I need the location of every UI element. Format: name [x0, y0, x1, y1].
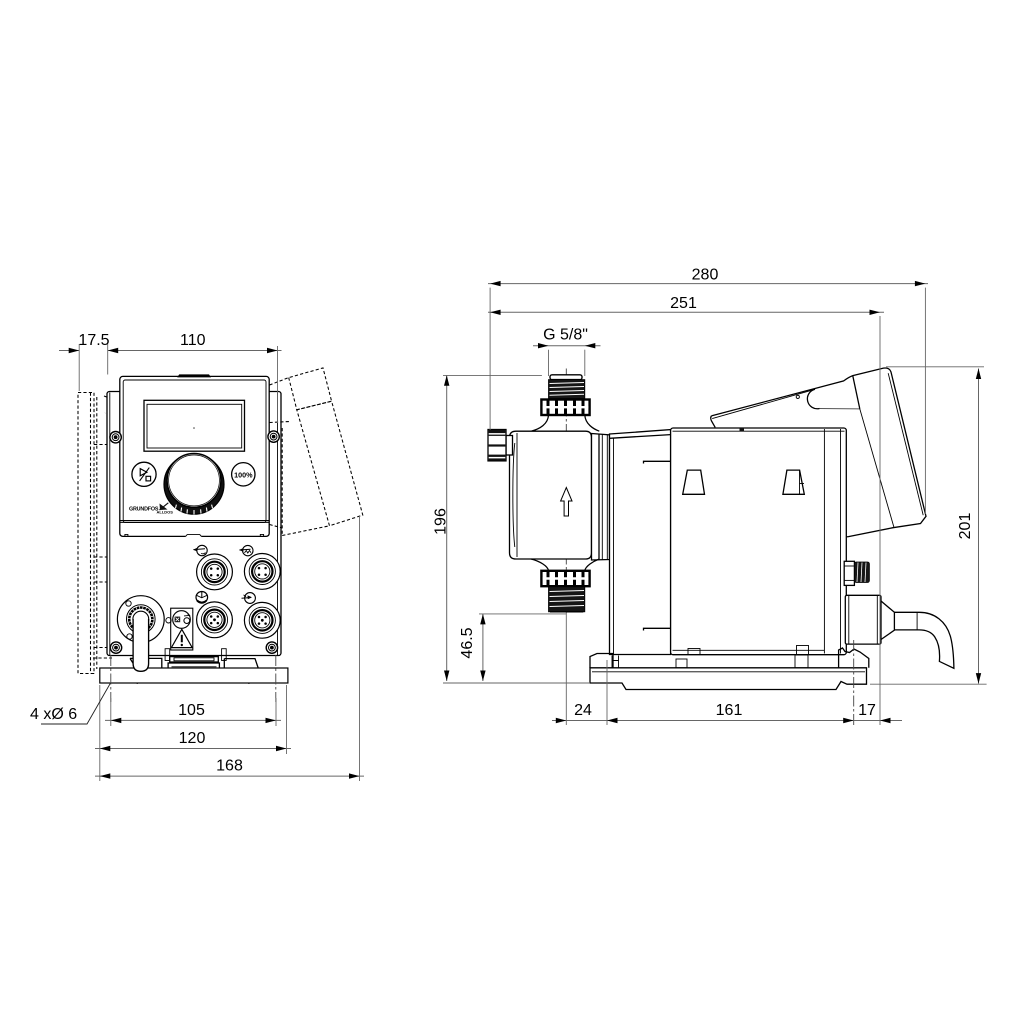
svg-text:110: 110 [180, 332, 206, 349]
svg-text:196: 196 [433, 508, 450, 535]
svg-text:251: 251 [670, 295, 697, 312]
svg-text:24: 24 [574, 702, 592, 719]
svg-text:17.5: 17.5 [78, 332, 109, 349]
svg-text:161: 161 [716, 702, 743, 719]
svg-text:280: 280 [692, 266, 719, 283]
svg-text:ALLDOS: ALLDOS [157, 510, 174, 515]
svg-text:105: 105 [178, 702, 205, 719]
svg-text:G 5/8": G 5/8" [543, 327, 588, 344]
svg-text:46.5: 46.5 [459, 627, 476, 658]
svg-text:17: 17 [858, 702, 876, 719]
svg-text:168: 168 [216, 757, 243, 774]
svg-text:201: 201 [957, 513, 974, 540]
svg-text:4 xØ 6: 4 xØ 6 [30, 706, 77, 723]
svg-text:120: 120 [179, 730, 206, 747]
svg-text:100%: 100% [234, 470, 253, 479]
svg-text:GRUNDFOS: GRUNDFOS [129, 506, 159, 512]
